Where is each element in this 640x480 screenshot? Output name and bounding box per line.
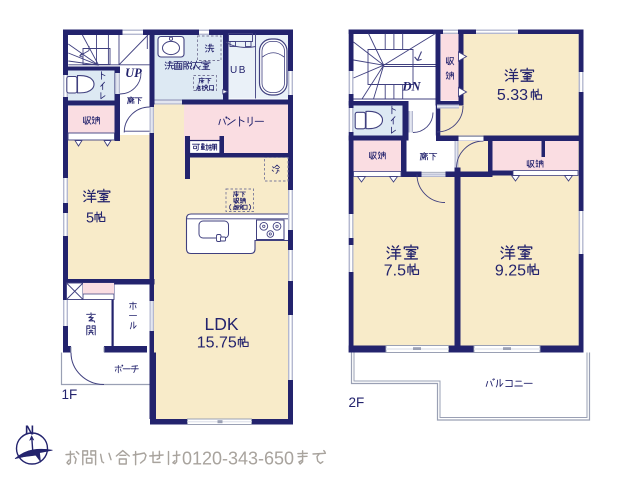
svg-text:1F: 1F — [62, 387, 78, 402]
svg-text:7.5: 7.5 — [384, 263, 406, 280]
svg-text:5.33: 5.33 — [497, 87, 528, 104]
svg-text:LDK: LDK — [204, 314, 238, 334]
svg-text:UB: UB — [230, 65, 247, 76]
svg-text:15.75: 15.75 — [197, 335, 237, 352]
svg-text:DN: DN — [401, 80, 421, 94]
svg-text:N: N — [25, 424, 34, 438]
svg-text:UP: UP — [125, 66, 142, 80]
svg-text:9.25: 9.25 — [495, 263, 526, 280]
svg-text:5: 5 — [86, 211, 94, 227]
svg-text:2F: 2F — [349, 395, 365, 410]
svg-text:0120-343-650: 0120-343-650 — [182, 449, 294, 469]
